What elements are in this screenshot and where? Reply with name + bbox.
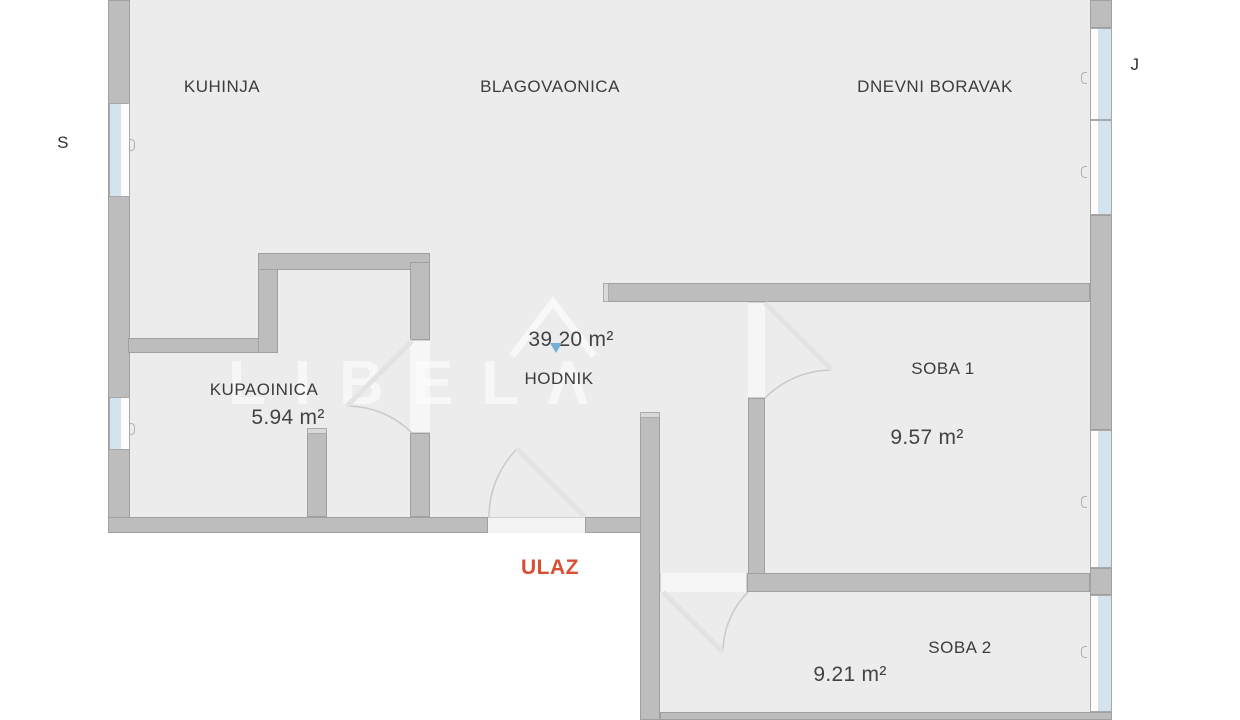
wall-bath-inner	[307, 428, 327, 517]
room-area-soba1: 9.57 m²	[890, 426, 963, 450]
window-handle-icon	[1081, 166, 1087, 178]
room-label-kuhinja: KUHINJA	[184, 77, 260, 97]
room-label-blagovaonica: BLAGOVAONICA	[480, 77, 620, 97]
window-glass	[1098, 431, 1111, 567]
floor-plan-canvas: { "plan": { "rooms": { "kuhinja": {"labe…	[0, 0, 1240, 720]
window-glass	[1098, 29, 1111, 119]
room-label-hodnik: HODNIK	[524, 369, 593, 389]
window-glass	[1098, 596, 1111, 711]
window-handle-icon	[129, 139, 135, 151]
room-label-dnevni-boravak: DNEVNI BORAVAK	[857, 77, 1013, 97]
wall-endcap-hall-left	[640, 412, 660, 418]
wall-bath-right-upper	[410, 262, 430, 340]
window-kitchen-west	[109, 103, 130, 197]
window-handle-icon	[1081, 72, 1087, 84]
wall-right-middle	[1090, 215, 1112, 430]
marker-pin-icon	[550, 343, 562, 353]
floor-main-top	[130, 0, 1090, 253]
room-label-kupaonica: KUPAOINICA	[210, 380, 319, 400]
wall-soba2-bottom	[660, 712, 1112, 720]
wall-bottom-west	[108, 517, 488, 533]
window-living-east-2	[1090, 120, 1112, 215]
room-area-hodnik: 39.20 m²	[528, 328, 613, 352]
window-soba2-east	[1090, 595, 1112, 712]
floor-upper-band	[430, 253, 1090, 283]
window-glass	[110, 104, 121, 196]
room-area-kupaonica: 5.94 m²	[251, 406, 324, 430]
wall-left	[108, 0, 130, 533]
wall-soba1-soba2	[747, 573, 1090, 592]
window-soba1-east	[1090, 430, 1112, 568]
wall-notch-top	[258, 253, 430, 270]
wall-right-lower	[1090, 568, 1112, 595]
window-glass	[110, 398, 121, 449]
wall-endcap-soba1-top	[603, 283, 609, 302]
wall-right-top	[1090, 0, 1112, 28]
soba1-door-opening	[748, 302, 765, 398]
window-handle-icon	[1081, 646, 1087, 658]
room-area-soba2: 9.21 m²	[813, 663, 886, 687]
room-label-soba2: SOBA 2	[928, 638, 991, 658]
entrance-label: ULAZ	[521, 556, 579, 580]
orientation-label-north: S	[57, 133, 69, 153]
window-living-east-1	[1090, 28, 1112, 120]
wall-hall-left	[640, 412, 660, 720]
floor-soba2	[660, 592, 1090, 712]
floor-soba1-corridor	[660, 283, 1090, 573]
window-bathroom-west	[109, 397, 130, 450]
wall-soba1-top	[603, 283, 1090, 302]
window-handle-icon	[1081, 496, 1087, 508]
window-glass	[1098, 121, 1111, 214]
wall-hall-soba1	[748, 398, 765, 592]
window-handle-icon	[129, 423, 135, 435]
entrance-door-opening	[488, 517, 585, 533]
wall-bath-right-lower	[410, 433, 430, 517]
room-label-soba1: SOBA 1	[911, 359, 974, 379]
orientation-label-south: J	[1131, 55, 1140, 75]
soba2-door-opening	[660, 573, 747, 592]
